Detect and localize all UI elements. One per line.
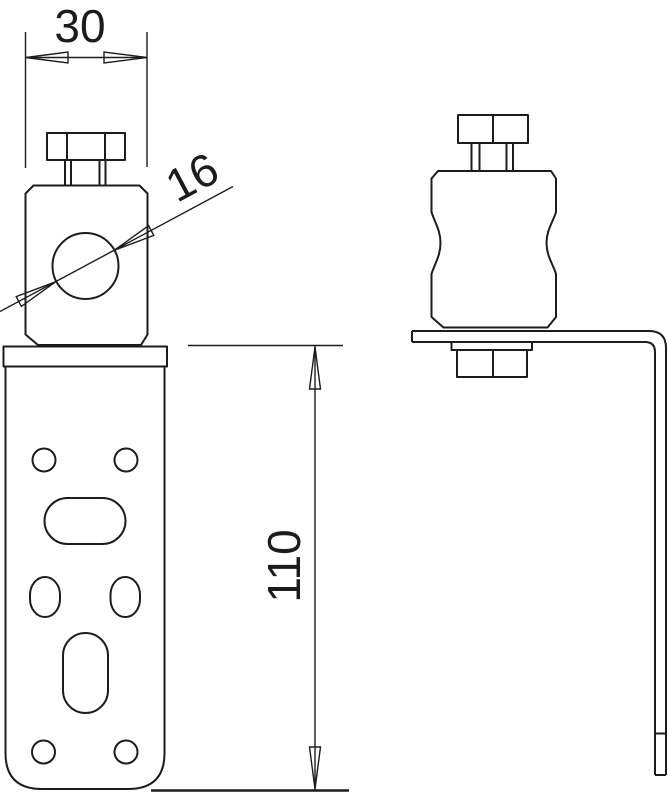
side-screw-shafts xyxy=(472,143,514,170)
side-nut xyxy=(457,350,527,377)
front-view xyxy=(4,133,168,789)
plate-outline xyxy=(6,367,165,790)
plate-hole-round xyxy=(32,741,55,764)
side-angle-bracket xyxy=(412,331,666,775)
dim-label-width: 30 xyxy=(54,0,105,52)
plate-hole-round xyxy=(115,741,138,764)
front-mounting-plate xyxy=(4,347,168,790)
side-washer xyxy=(452,342,533,350)
technical-drawing: 30 16 110 xyxy=(0,0,668,794)
side-screw-head xyxy=(458,115,528,143)
plate-fold-band xyxy=(4,347,168,367)
dimension-hole-16: 16 xyxy=(0,142,233,311)
plate-hole-oval xyxy=(111,577,141,617)
side-clamp-body xyxy=(432,171,557,328)
dim-label-hole: 16 xyxy=(157,142,227,212)
plate-slot-vertical xyxy=(63,633,108,713)
side-view xyxy=(412,115,666,775)
dim-label-height: 110 xyxy=(258,529,310,602)
plate-hole-round xyxy=(115,449,138,472)
front-screw-shafts xyxy=(65,160,106,186)
front-screw-head xyxy=(47,133,125,160)
drawing-canvas: 30 16 110 xyxy=(0,0,668,794)
dimension-width-30: 30 xyxy=(26,0,148,168)
plate-hole-oval xyxy=(30,577,60,617)
dimension-height-110: 110 xyxy=(151,346,349,791)
arrowhead-lower-icon xyxy=(16,282,56,307)
plate-hole-round xyxy=(33,449,56,472)
plate-slot-horizontal xyxy=(45,498,126,544)
